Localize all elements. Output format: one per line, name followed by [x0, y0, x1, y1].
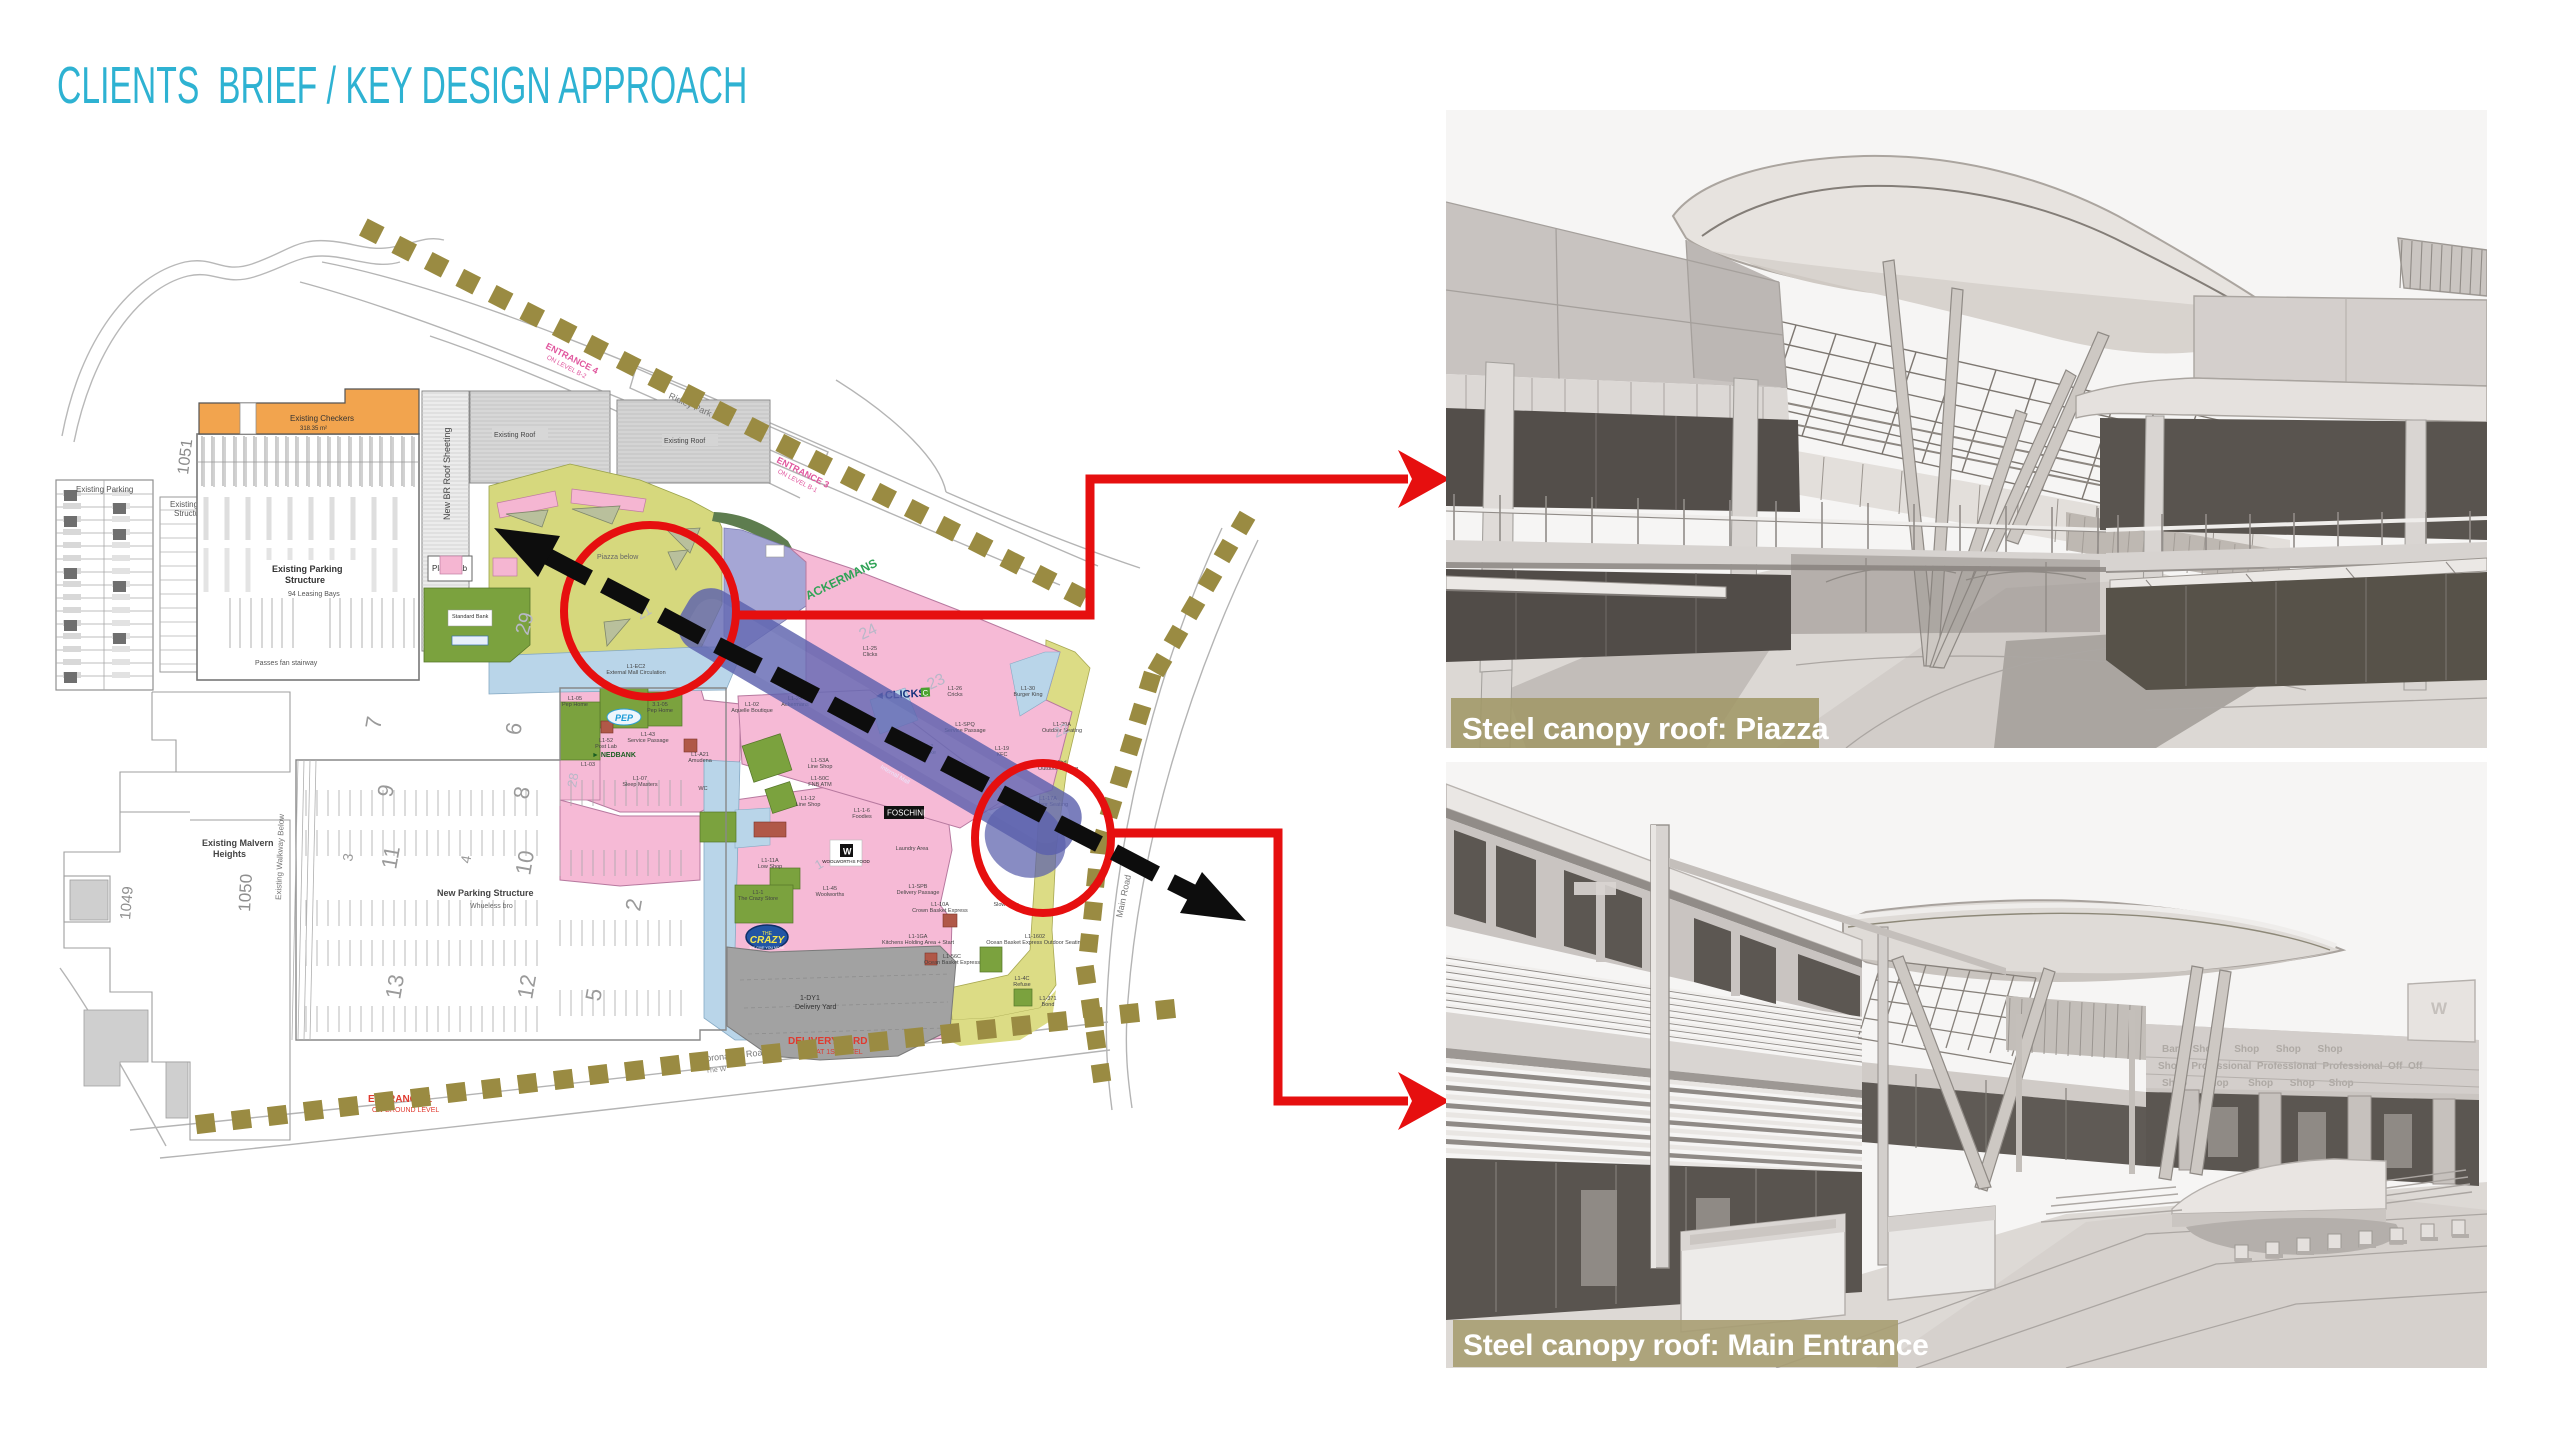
svg-text:Aquelle Boutique: Aquelle Boutique [731, 708, 773, 714]
svg-text:Clicks: Clicks [863, 652, 878, 658]
svg-text:12: 12 [512, 972, 541, 1000]
svg-text:Pep Home: Pep Home [647, 708, 673, 714]
svg-text:New Parking Structure: New Parking Structure [437, 888, 534, 898]
svg-text:► NEDBANK: ► NEDBANK [592, 752, 636, 759]
svg-text:94 Leasing Bays: 94 Leasing Bays [288, 591, 340, 598]
svg-text:CRAZY: CRAZY [750, 935, 786, 946]
svg-text:Crown Basket Express: Crown Basket Express [912, 908, 968, 914]
svg-text:4: 4 [457, 854, 474, 865]
svg-text:Refuse: Refuse [1013, 982, 1030, 988]
svg-text:Low Shop: Low Shop [758, 864, 782, 870]
svg-text:L1-03: L1-03 [581, 762, 595, 768]
svg-text:Post Lab: Post Lab [595, 744, 617, 750]
svg-text:Steel canopy roof: Main Entran: Steel canopy roof: Main Entrance [1463, 1329, 1929, 1362]
svg-text:6: 6 [500, 720, 527, 736]
svg-text:Passes fan stairway: Passes fan stairway [255, 660, 318, 667]
svg-text:1051: 1051 [175, 438, 196, 476]
svg-text:C: C [922, 688, 928, 697]
svg-text:Cricks: Cricks [947, 692, 963, 698]
svg-text:New BR Roof Sheeting: New BR Roof Sheeting [442, 427, 452, 520]
svg-text:Line Shop: Line Shop [808, 764, 833, 770]
svg-text:Existing Roof: Existing Roof [664, 438, 705, 445]
svg-text:Woolworths: Woolworths [816, 892, 845, 898]
svg-text:Delivery Yard: Delivery Yard [795, 1004, 836, 1011]
svg-text:Ocean Basket Express Outdoor S: Ocean Basket Express Outdoor Seating [986, 940, 1084, 946]
svg-text:2: 2 [620, 896, 647, 912]
svg-text:Service Passage: Service Passage [627, 738, 668, 744]
svg-text:3: 3 [339, 852, 356, 863]
svg-text:PEP: PEP [615, 713, 634, 723]
svg-text:WOOLWORTHS FOOD: WOOLWORTHS FOOD [822, 859, 870, 864]
svg-text:318.35 m²: 318.35 m² [300, 426, 327, 432]
svg-text:Line Shop: Line Shop [796, 802, 821, 808]
svg-text:Kitchens Holding Area + Start: Kitchens Holding Area + Start [882, 940, 954, 946]
svg-text:Pep Home: Pep Home [562, 702, 588, 708]
svg-text:Foodies: Foodies [852, 814, 872, 820]
svg-text:The Crazy Store: The Crazy Store [738, 896, 778, 902]
svg-text:Whueless bro: Whueless bro [470, 903, 513, 910]
svg-text:Structure: Structure [285, 575, 325, 585]
svg-text:1050: 1050 [235, 873, 256, 912]
svg-text:Sleep Masters: Sleep Masters [622, 782, 657, 788]
svg-text:13: 13 [380, 972, 409, 1000]
svg-text:Existing Walkway Below: Existing Walkway Below [274, 814, 286, 900]
svg-text:Existing Parking: Existing Parking [76, 485, 133, 494]
svg-text:WE GIVE YOU MORE: WE GIVE YOU MORE [750, 946, 786, 950]
svg-text:10: 10 [510, 848, 539, 876]
svg-text:FNB ATM: FNB ATM [808, 782, 832, 788]
svg-text:Laundry Area: Laundry Area [896, 846, 930, 852]
svg-text:W: W [2431, 999, 2448, 1018]
svg-text:Amudena: Amudena [688, 758, 712, 764]
svg-text:FOSCHINI: FOSCHINI [887, 809, 925, 818]
svg-text:7: 7 [360, 714, 387, 730]
svg-text:8: 8 [508, 784, 535, 800]
svg-text:28: 28 [564, 772, 581, 789]
svg-text:Ocean Basket Express: Ocean Basket Express [924, 960, 980, 966]
svg-text:1049: 1049 [117, 886, 137, 921]
svg-text:Standard Bank: Standard Bank [452, 614, 489, 620]
svg-text:Piazza below: Piazza below [597, 554, 639, 561]
svg-text:Shop Shop Shop: Shop Shop Shop Shop Shop [2162, 1078, 2354, 1089]
svg-text:Existing Roof: Existing Roof [494, 432, 535, 439]
svg-text:5: 5 [580, 986, 607, 1002]
svg-text:11: 11 [376, 844, 405, 871]
svg-text:Existing Malvern: Existing Malvern [202, 838, 274, 848]
svg-text:9: 9 [372, 782, 399, 798]
svg-text:Heights: Heights [213, 849, 246, 859]
svg-text:Delivery Passage: Delivery Passage [897, 890, 940, 896]
svg-text:Existing Checkers: Existing Checkers [290, 414, 354, 423]
svg-text:W: W [843, 847, 852, 857]
svg-text:External Mall Circulation: External Mall Circulation [606, 670, 665, 676]
svg-text:Existing Parking: Existing Parking [272, 564, 343, 574]
svg-text:Burger King: Burger King [1013, 692, 1042, 698]
svg-text:Steel canopy roof: Piazza: Steel canopy roof: Piazza [1462, 711, 1829, 746]
svg-text:Bond: Bond [1042, 1002, 1055, 1008]
svg-text:WC: WC [698, 786, 707, 792]
svg-text:1-DY1: 1-DY1 [800, 995, 820, 1002]
svg-text:Main Road: Main Road [1114, 874, 1133, 919]
